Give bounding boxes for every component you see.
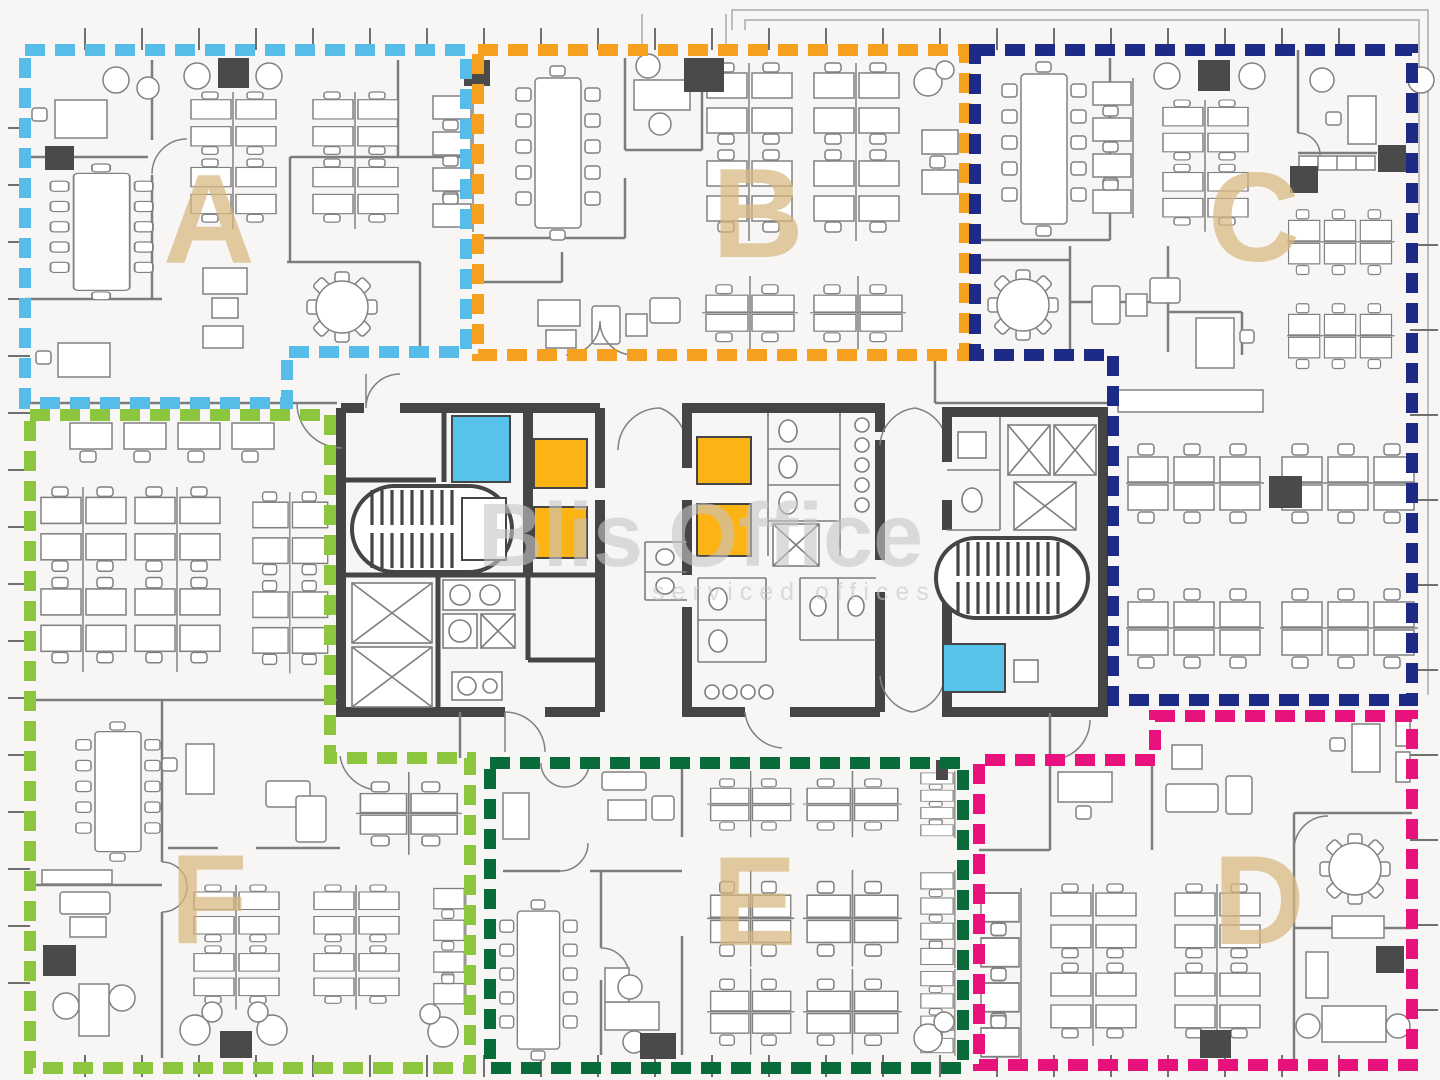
svg-text:B: B [712,142,804,284]
svg-text:D: D [1213,829,1305,971]
svg-text:F: F [170,828,248,970]
svg-text:A: A [163,148,255,290]
svg-text:C: C [1208,146,1300,288]
svg-text:E: E [712,830,797,972]
svg-text:serviced offices: serviced offices [652,578,936,606]
svg-text:Blis Office: Blis Office [478,486,923,586]
